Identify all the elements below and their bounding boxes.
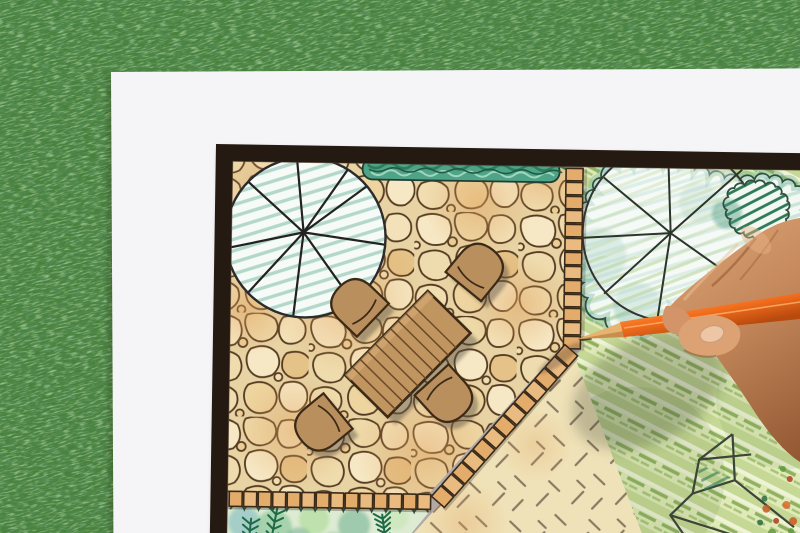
- photo-stage: [0, 0, 800, 533]
- brick-edge-bottom: [229, 491, 431, 509]
- brick-edge-vertical: [563, 168, 583, 349]
- garden-plan-photo: [0, 0, 800, 533]
